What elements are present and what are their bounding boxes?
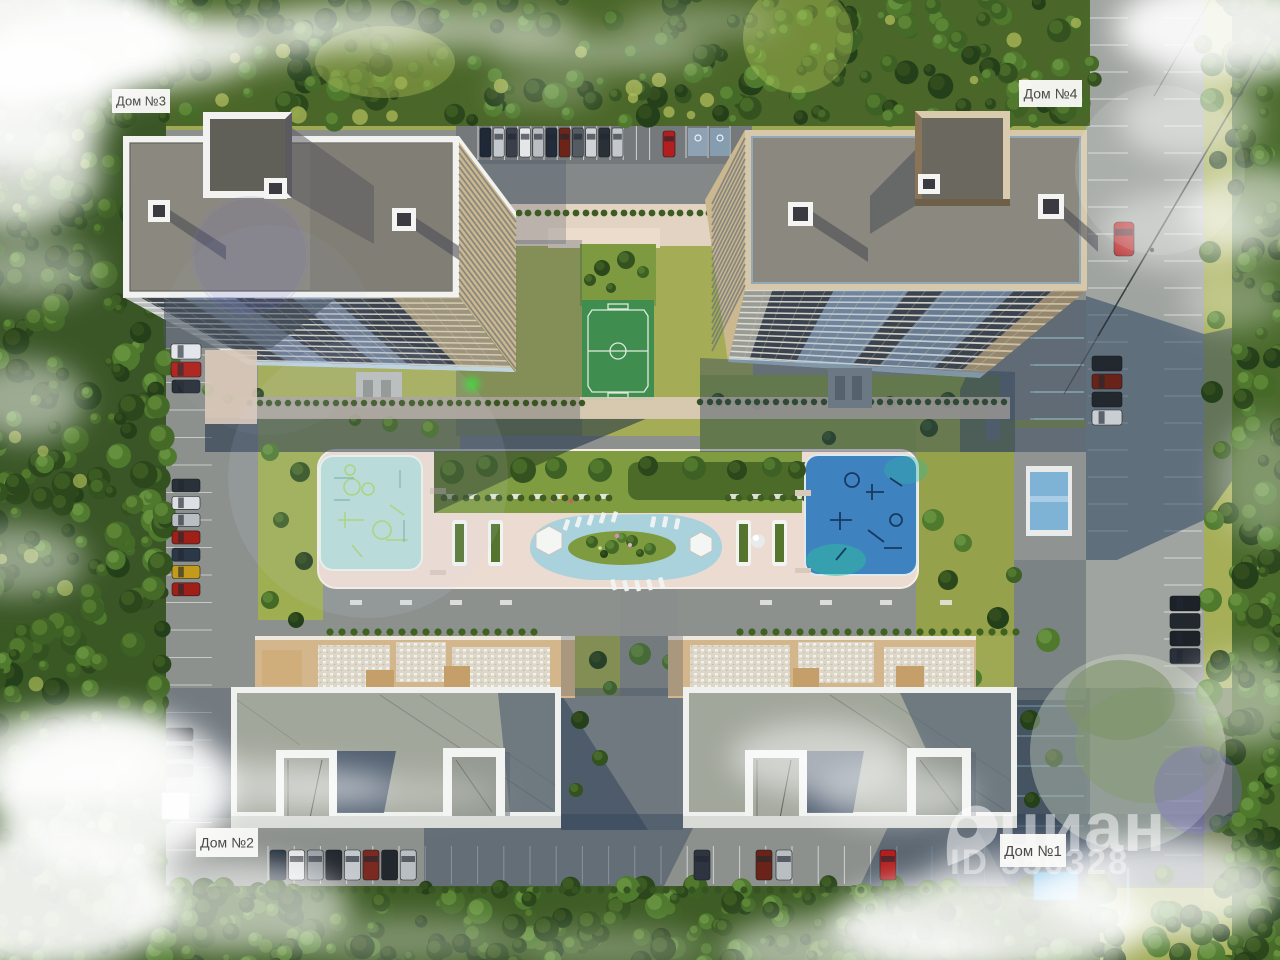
svg-text:Дом №3: Дом №3 — [116, 94, 166, 109]
svg-text:Дом №1: Дом №1 — [1004, 843, 1062, 860]
svg-text:Дом №2: Дом №2 — [200, 835, 254, 851]
svg-text:Дом №4: Дом №4 — [1024, 86, 1078, 102]
